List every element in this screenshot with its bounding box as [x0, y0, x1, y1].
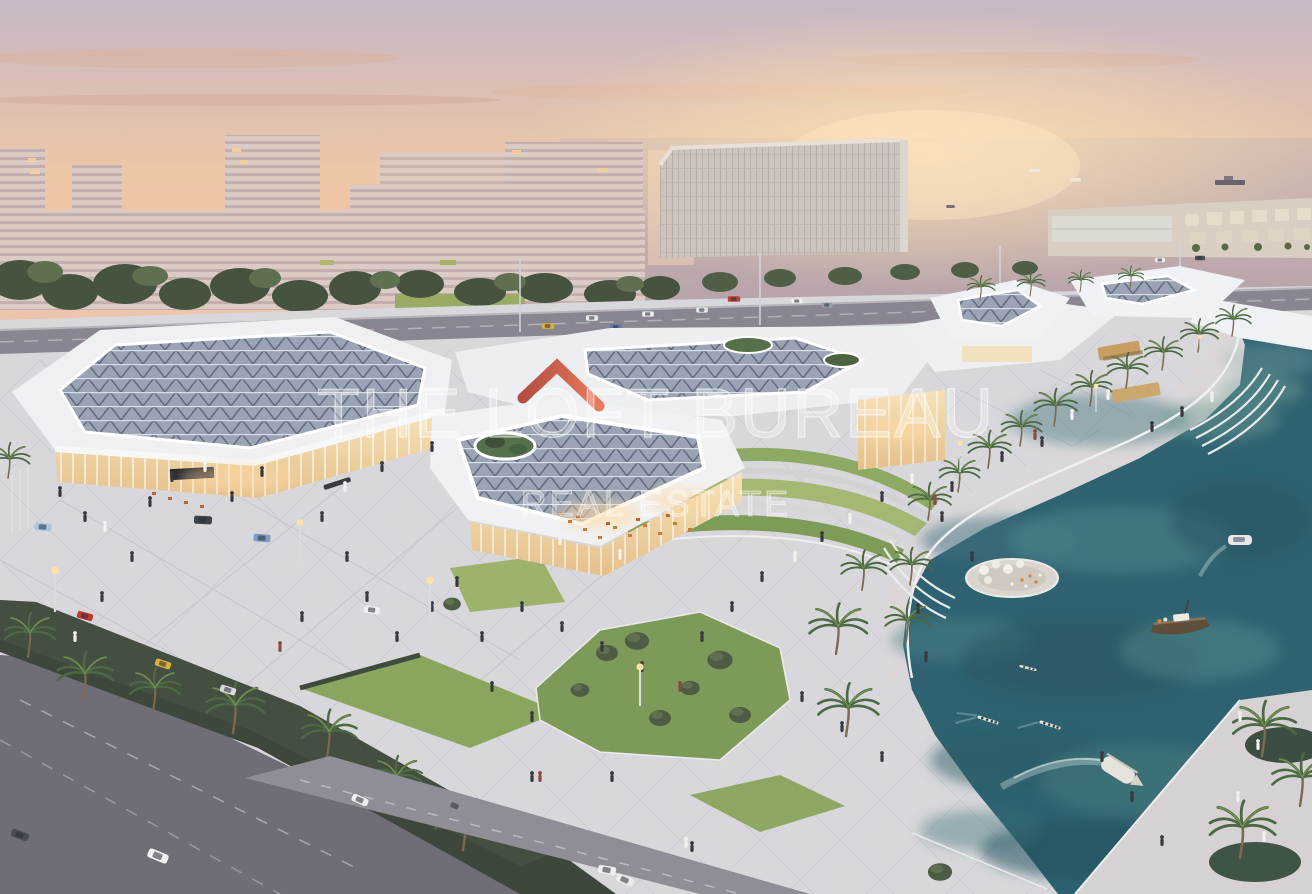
- glass-office-building: [660, 140, 908, 258]
- scene-svg: [0, 0, 1312, 894]
- rendering-canvas: THE LOFT BUREAU REAL ESTATE: [0, 0, 1312, 894]
- floating-platform: [966, 559, 1058, 597]
